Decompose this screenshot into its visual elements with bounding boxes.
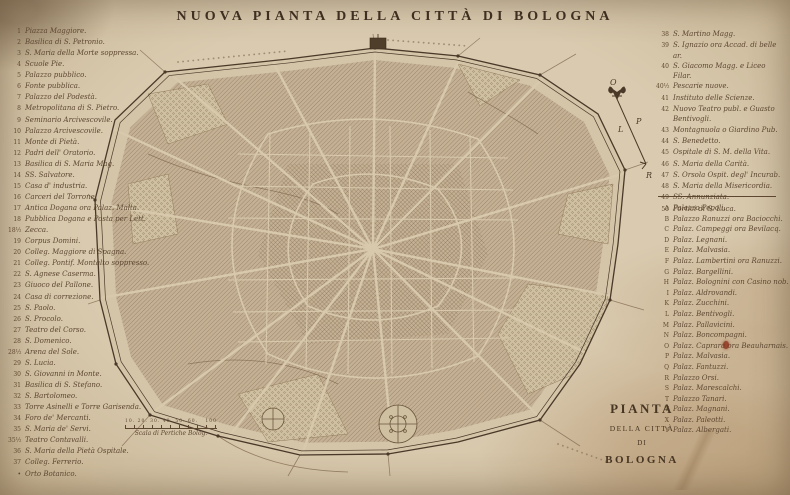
legend-item-letter: I (656, 289, 669, 300)
legend-item: L Palaz. Bentivogli. (656, 309, 786, 320)
legend-item-label: S. Martino Magg. (673, 29, 735, 39)
legend-item-number: 39 (656, 41, 669, 51)
legend-item-number: 3 (8, 48, 21, 59)
legend-item-label: Zecca. (25, 225, 48, 236)
legend-item-number: 33 (8, 402, 21, 413)
legend-item: 5 Palazzo pubblico. (8, 70, 166, 81)
legend-item-label: Palaz. Campeggi ora Bevilacq. (673, 224, 781, 235)
legend-item-number: 38 (656, 30, 669, 40)
legend-item-label: Palaz. Legnani. (673, 235, 727, 246)
legend-item: D Palaz. Legnani. (656, 235, 786, 246)
legend-item-label: Montagnuola o Giardino Pub. (673, 125, 778, 135)
legend-item: 40 S. Giacomo Magg. e Liceo Filar. (656, 61, 786, 82)
legend-item-label: S. Lucia. (25, 358, 56, 369)
legend-item-label: Monte di Pietà. (25, 137, 79, 148)
legend-item-number: 15 (8, 181, 21, 192)
legend-item: C Palaz. Campeggi ora Bevilacq. (656, 224, 786, 235)
legend-item: 32 S. Bartolomeo. (8, 391, 166, 402)
map-title: NUOVA PIANTA DELLA CITTÀ DI BOLOGNA (0, 9, 790, 25)
legend-item-label: Pescarie nuove. (673, 81, 729, 91)
legend-item: N Palaz. Boncompagni. (656, 330, 786, 341)
legend-item: K Palaz. Zucchini. (656, 298, 786, 309)
legend-item-label: S. Ignazio ora Accad. di belle ar. (673, 40, 786, 61)
legend-item: 47 S. Orsola Ospit. degl' Incurab. (656, 170, 786, 181)
legend-item-label: Foro de' Mercanti. (25, 413, 91, 424)
legend-item-letter: K (656, 299, 669, 310)
legend-item: R Palazzo Orsi. (656, 373, 786, 384)
compass-letter-bottom: R (645, 171, 652, 180)
legend-item-label: Seminario Arcivescovile. (25, 115, 113, 126)
legend-item-label: Orto Botanico. (25, 469, 77, 480)
legend-item: 15 Casa d' industria. (8, 181, 166, 192)
legend-item-label: Palaz. Zucchini. (673, 298, 729, 309)
legend-item-label: S. Paolo. (25, 303, 55, 314)
legend-item-number: 17 (8, 203, 21, 214)
legend-item: 48 S. Maria della Misericordia. (656, 181, 786, 192)
legend-item-label: Padri dell' Oratorio. (25, 148, 95, 159)
legend-item-number: 35½ (8, 435, 21, 446)
legend-item-label: S. Maria della Morte soppressa. (25, 48, 139, 59)
legend-item-letter: B (656, 215, 669, 226)
legend-item: 16 Carceri del Torrone. (8, 192, 166, 203)
legend-item-number: 4 (8, 59, 21, 70)
legend-item: 2 Basilica di S. Petronio. (8, 37, 166, 48)
legend-item-label: Casa di correzione. (25, 292, 93, 303)
legend-item-letter: O (656, 342, 669, 353)
legend-item-label: Palazzo pubblico. (25, 70, 86, 81)
legend-item-letter: Q (656, 363, 669, 374)
legend-item: 29 S. Lucia. (8, 358, 166, 369)
legend-item-label: Palaz. Pallavicini. (673, 320, 735, 331)
legend-item-number: 31 (8, 380, 21, 391)
legend-item: 3 S. Maria della Morte soppressa. (8, 48, 166, 59)
legend-item-letter: M (656, 321, 669, 332)
legend-item: H Palaz. Bolognini con Casino nob. (656, 277, 786, 288)
legend-item: 41 Instituto delle Scienze. (656, 93, 786, 104)
legend-item-label: Pubblica Dogana e Posta per Lett. (25, 214, 146, 225)
legend-item-label: Carceri del Torrone. (25, 192, 97, 203)
legend-item-label: SS. Salvatore. (25, 170, 75, 181)
legend-item-number: 27 (8, 325, 21, 336)
legend-item-number: 1 (8, 26, 21, 37)
legend-item-number: 22 (8, 269, 21, 280)
legend-item-label: Palaz. Malvasia. (673, 245, 730, 256)
legend-item-number: 11 (8, 137, 21, 148)
legend-item-label: Palazzo Pepoli. (673, 203, 726, 214)
scale-tick-numbers: 10. 20. 30. 40. 50. 60. (125, 419, 198, 424)
legend-item: F Palaz. Lambertini ora Ranuzzi. (656, 256, 786, 267)
legend-item: 18½ Zecca. (8, 225, 166, 236)
legend-item-label: Colleg. Ferrerio. (25, 457, 83, 468)
legend-item: 46 S. Maria della Carità. (656, 159, 786, 170)
legend-item: 6 Fonte pubblica. (8, 81, 166, 92)
legend-item: 12 Padri dell' Oratorio. (8, 148, 166, 159)
scale-bar-rule (125, 425, 217, 429)
legend-item-number: 28 (8, 336, 21, 347)
legend-item-number: 13 (8, 159, 21, 170)
legend-item: 19 Corpus Domini. (8, 236, 166, 247)
legend-item: 25 S. Paolo. (8, 303, 166, 314)
legend-item-number: 30 (8, 369, 21, 380)
legend-item-number: 36 (8, 446, 21, 457)
legend-item: S Palaz. Marescalchi. (656, 383, 786, 394)
legend-item-number: 23 (8, 280, 21, 291)
legend-item-number: 16 (8, 192, 21, 203)
legend-item-label: S. Procolo. (25, 314, 63, 325)
compass-letter-top: O (610, 78, 617, 87)
legend-item-letter: P (656, 352, 669, 363)
legend-item: 30 S. Giovanni in Monte. (8, 369, 166, 380)
legend-item: 38 S. Martino Magg. (656, 29, 786, 40)
legend-item-label: Palaz. Caprara ora Beauharnais. (673, 341, 788, 352)
legend-item-label: S. Agnese Caserma. (25, 269, 96, 280)
scale-bar: 10. 20. 30. 40. 50. 60. 100 Scala di Per… (125, 419, 217, 437)
legend-item: 7 Palazzo del Podestà. (8, 92, 166, 103)
legend-item: I Palaz. Aldrovandi. (656, 288, 786, 299)
legend-item-label: Palazzo Ranuzzi ora Baciocchi. (673, 214, 783, 225)
legend-item: 10 Palazzo Arcivescovile. (8, 126, 166, 137)
legend-item-number: 9 (8, 115, 21, 126)
legend-item-label: Colleg. Pontif. Montalto soppresso. (25, 258, 149, 269)
legend-item: A Palazzo Pepoli. (656, 203, 786, 214)
legend-item: 43 Montagnuola o Giardino Pub. (656, 125, 786, 136)
legend-item-number: 35 (8, 424, 21, 435)
legend-item-number: 7 (8, 92, 21, 103)
legend-item: Q Palaz. Fantuzzi. (656, 362, 786, 373)
legend-item-label: Teatro Contavalli. (25, 435, 88, 446)
legend-item-number: 8 (8, 103, 21, 114)
scale-bar-label: Scala di Pertiche Bolog. (125, 430, 217, 437)
scale-bar-ticks: 10. 20. 30. 40. 50. 60. 100 (125, 419, 217, 424)
compass-letter-right: P (635, 117, 642, 126)
legend-item: 13 Basilica di S. Maria Mag. (8, 159, 166, 170)
legend-item: 36 S. Maria della Pietà Ospitale. (8, 446, 166, 457)
legend-item: 11 Monte di Pietà. (8, 137, 166, 148)
legend-item: 17 Antica Dogana ora Palaz. Malta. (8, 203, 166, 214)
legend-item-label: Palaz. Boncompagni. (673, 330, 747, 341)
city-map (88, 34, 648, 479)
legend-item-number: 19 (8, 236, 21, 247)
legend-item-label: S. Maria della Misericordia. (673, 181, 772, 191)
legend-left-column: 1 Piazza Maggiore. 2 Basilica di S. Petr… (8, 26, 166, 480)
legend-item-label: Palazzo Orsi. (673, 373, 719, 384)
legend-item-label: Scuole Pie. (25, 59, 64, 70)
legend-item-label: S. Benedetto. (673, 136, 721, 146)
legend-item: 37 Colleg. Ferrerio. (8, 457, 166, 468)
legend-item: 31 Basilica di S. Stefano. (8, 380, 166, 391)
legend-item-number: 34 (8, 413, 21, 424)
legend-item-label: Arena del Sole. (25, 347, 79, 358)
legend-item-label: S. Giacomo Magg. e Liceo Filar. (673, 61, 786, 82)
legend-item-label: S. Maria della Carità. (673, 159, 749, 169)
scale-end-number: 100 (205, 419, 217, 424)
legend-item-label: Palaz. Marescalchi. (673, 383, 742, 394)
legend-item-number: • (8, 469, 21, 480)
legend-item-number: 14 (8, 170, 21, 181)
legend-item: 21 Colleg. Pontif. Montalto soppresso. (8, 258, 166, 269)
legend-item: 24 Casa di correzione. (8, 292, 166, 303)
legend-item-label: Ospitale di S. M. della Vita. (673, 147, 770, 157)
legend-item-label: Nuovo Teatro publ. e Guasto Bentivogli. (673, 104, 786, 125)
legend-item: 42 Nuovo Teatro publ. e Guasto Bentivogl… (656, 104, 786, 125)
legend-item-letter: E (656, 246, 669, 257)
legend-item-number: 32 (8, 391, 21, 402)
legend-item-label: Palaz. Aldrovandi. (673, 288, 737, 299)
legend-item-number: 40 (656, 62, 669, 72)
legend-item: 45 Ospitale di S. M. della Vita. (656, 147, 786, 158)
legend-item-label: SS. Annunziata. (673, 192, 729, 202)
legend-item-letter: L (656, 310, 669, 321)
legend-right-column: 38 S. Martino Magg. 39 S. Ignazio ora Ac… (656, 29, 786, 215)
legend-item: 14 SS. Salvatore. (8, 170, 166, 181)
ink-stain (723, 341, 729, 349)
legend-item-letter: A (656, 204, 669, 215)
legend-item-label: Palaz. Bolognini con Casino nob. (673, 277, 789, 288)
legend-item: 20 Colleg. Maggiore di Spagna. (8, 247, 166, 258)
legend-item-label: Palaz. Bargellini. (673, 267, 733, 278)
legend-item-number: 18 (8, 214, 21, 225)
legend-item-label: S. Domenico. (25, 336, 72, 347)
legend-item: E Palaz. Malvasia. (656, 245, 786, 256)
legend-item-number: 2 (8, 37, 21, 48)
legend-item-label: S. Bartolomeo. (25, 391, 77, 402)
legend-item-label: Metropolitana di S. Pietro. (25, 103, 119, 114)
legend-item: 4 Scuole Pie. (8, 59, 166, 70)
legend-item: 44 S. Benedetto. (656, 136, 786, 147)
legend-item-label: Palaz. Lambertini ora Ranuzzi. (673, 256, 782, 267)
legend-item-label: Basilica di S. Maria Mag. (25, 159, 114, 170)
legend-item-number: 37 (8, 457, 21, 468)
legend-item: 28 S. Domenico. (8, 336, 166, 347)
legend-item-number: 29 (8, 358, 21, 369)
legend-item-letter: H (656, 278, 669, 289)
legend-item: 39 S. Ignazio ora Accad. di belle ar. (656, 40, 786, 61)
legend-item-label: Casa d' industria. (25, 181, 87, 192)
legend-item-label: Basilica di S. Stefano. (25, 380, 102, 391)
map-sheet: NUOVA PIANTA DELLA CITTÀ DI BOLOGNA (0, 0, 790, 495)
legend-item-letter: F (656, 257, 669, 268)
legend-item-label: Fonte pubblica. (25, 81, 80, 92)
legend-item-label: Teatro del Corso. (25, 325, 86, 336)
legend-item-letter: S (656, 384, 669, 395)
legend-item-label: Piazza Maggiore. (25, 26, 86, 37)
legend-item-label: Palazzo del Podestà. (25, 92, 97, 103)
legend-item-number: 5 (8, 70, 21, 81)
compass-needle: O L P R (596, 76, 658, 180)
legend-item-label: Instituto delle Scienze. (673, 93, 755, 103)
legend-item: 8 Metropolitana di S. Pietro. (8, 103, 166, 114)
cartouche-line-1: PIANTA (592, 401, 692, 417)
legend-item-letter: D (656, 236, 669, 247)
legend-item: P Palaz. Malvasia. (656, 351, 786, 362)
legend-item: 18 Pubblica Dogana e Posta per Lett. (8, 214, 166, 225)
legend-item-label: Palaz. Bentivogli. (673, 309, 734, 320)
legend-item-label: Palaz. Fantuzzi. (673, 362, 728, 373)
legend-item-number: 20 (8, 247, 21, 258)
legend-item: 40½ Pescarie nuove. (656, 81, 786, 92)
legend-item-label: S. Maria de' Servi. (25, 424, 91, 435)
legend-item-label: Antica Dogana ora Palaz. Malta. (25, 203, 139, 214)
legend-item-number: 6 (8, 81, 21, 92)
legend-item-number: 24 (8, 292, 21, 303)
paper-crease (600, 430, 790, 490)
legend-item-number: 25 (8, 303, 21, 314)
legend-item: 23 Giuoco del Pallone. (8, 280, 166, 291)
legend-item: 22 S. Agnese Caserma. (8, 269, 166, 280)
legend-item-number: 21 (8, 258, 21, 269)
legend-item: 33 Torre Asinelli e Torre Garisenda. (8, 402, 166, 413)
legend-item: B Palazzo Ranuzzi ora Baciocchi. (656, 214, 786, 225)
legend-item: • Orto Botanico. (8, 469, 166, 480)
fleur-de-lis-icon (609, 87, 626, 99)
legend-item-label: S. Giovanni in Monte. (25, 369, 102, 380)
legend-item-letter: R (656, 374, 669, 385)
legend-item: O Palaz. Caprara ora Beauharnais. (656, 341, 786, 352)
legend-item: 28½ Arena del Sole. (8, 347, 166, 358)
legend-item: M Palaz. Pallavicini. (656, 320, 786, 331)
compass-letter-left: L (617, 125, 623, 134)
legend-item-letter: C (656, 225, 669, 236)
legend-item-number: 12 (8, 148, 21, 159)
legend-item-number: 18½ (8, 225, 21, 236)
legend-item-number: 48 (656, 182, 669, 192)
legend-item-label: Basilica di S. Petronio. (25, 37, 105, 48)
legend-item-label: Palaz. Malvasia. (673, 351, 730, 362)
legend-item: 27 Teatro del Corso. (8, 325, 166, 336)
legend-item-letter: N (656, 331, 669, 342)
legend-item-number: 10 (8, 126, 21, 137)
legend-item-letter: G (656, 268, 669, 279)
legend-item-label: S. Orsola Ospit. degl' Incurab. (673, 170, 780, 180)
legend-item-number: 28½ (8, 347, 21, 358)
legend-item-label: Giuoco del Pallone. (25, 280, 93, 291)
legend-item-label: Corpus Domini. (25, 236, 80, 247)
legend-divider (658, 196, 776, 197)
legend-item-label: Colleg. Maggiore di Spagna. (25, 247, 126, 258)
fort-icon (370, 34, 386, 49)
legend-item-label: Torre Asinelli e Torre Garisenda. (25, 402, 141, 413)
legend-item: 26 S. Procolo. (8, 314, 166, 325)
legend-item: 9 Seminario Arcivescovile. (8, 115, 166, 126)
legend-item-label: S. Maria della Pietà Ospitale. (25, 446, 129, 457)
legend-item: G Palaz. Bargellini. (656, 267, 786, 278)
legend-item-number: 26 (8, 314, 21, 325)
legend-item-label: Palazzo Arcivescovile. (25, 126, 103, 137)
legend-item: 1 Piazza Maggiore. (8, 26, 166, 37)
